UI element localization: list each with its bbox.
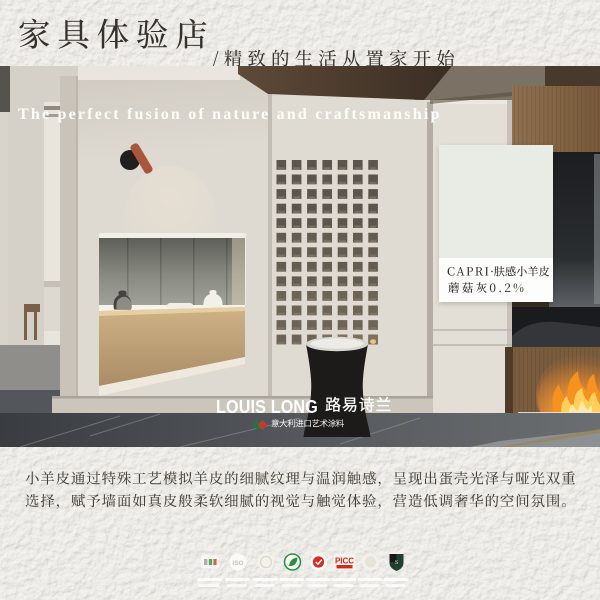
svg-text:ISO: ISO	[232, 560, 243, 567]
svg-text:S: S	[395, 560, 398, 566]
svg-text:PICC: PICC	[335, 557, 354, 566]
